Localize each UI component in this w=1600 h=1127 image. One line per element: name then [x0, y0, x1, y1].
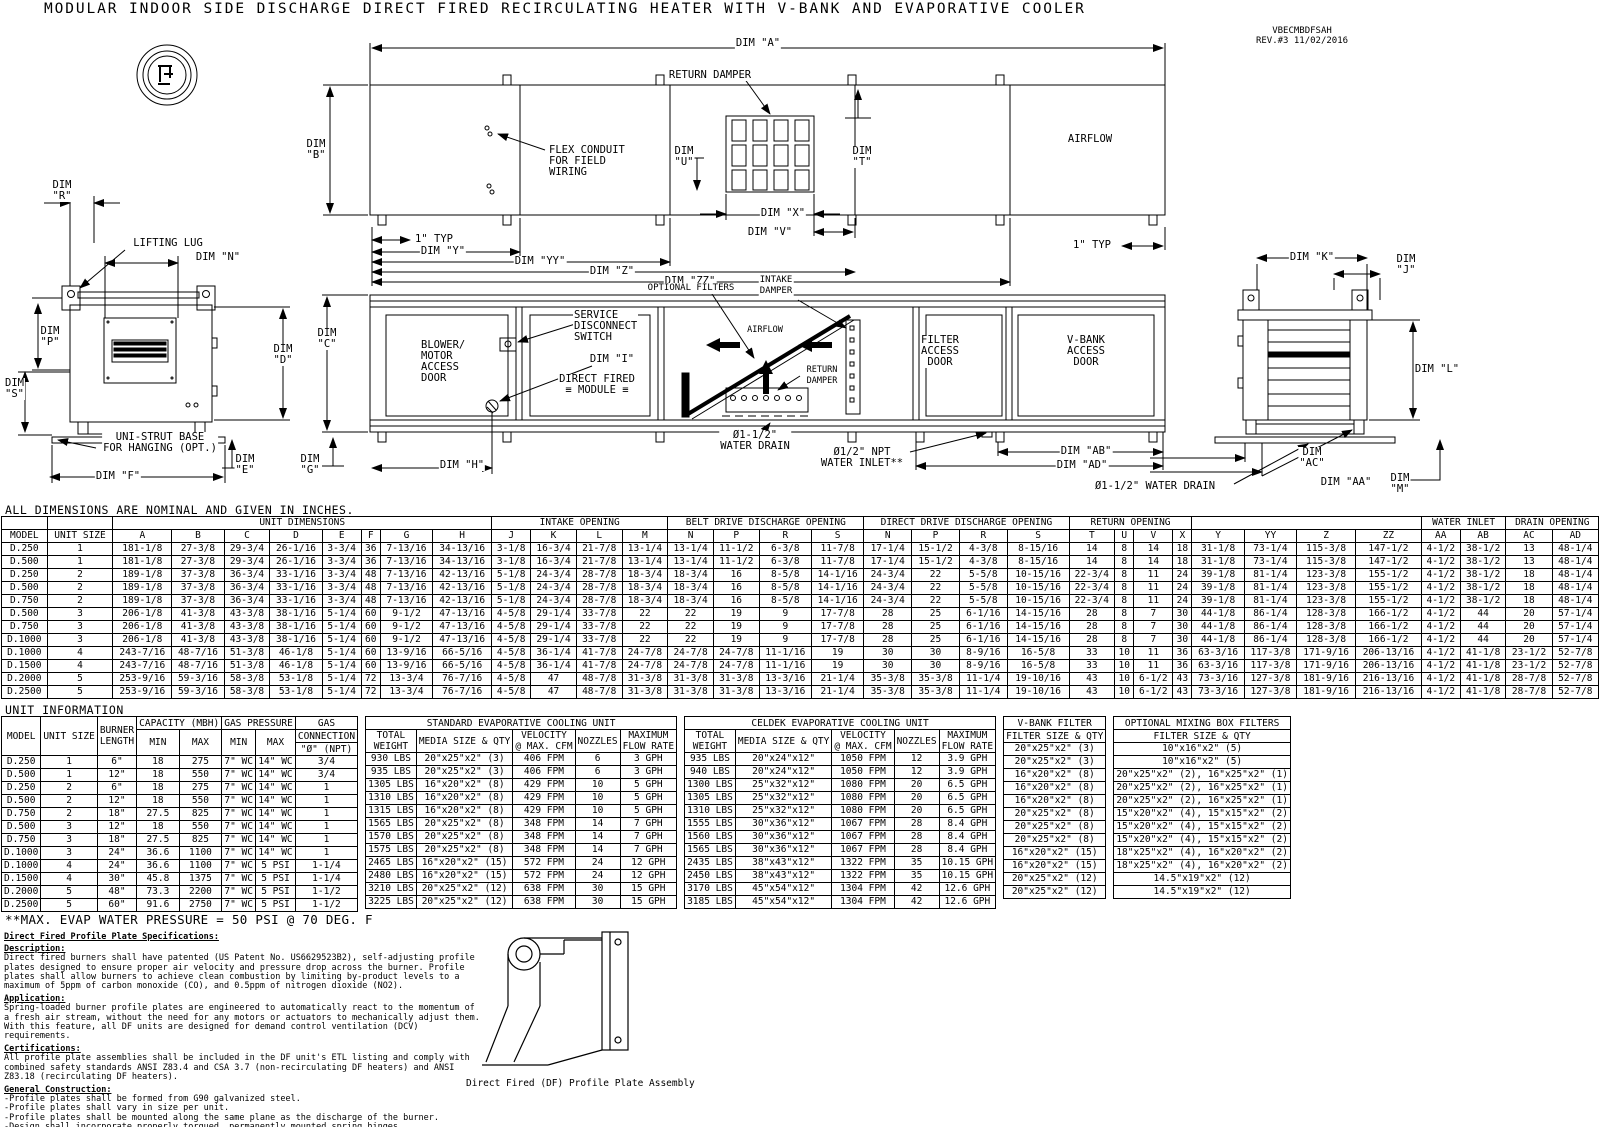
table-cell: 14-15/16 [1007, 634, 1069, 647]
table-cell: 34-13/16 [433, 556, 492, 569]
table-cell: 43 [1173, 673, 1192, 686]
table-cell: 1322 FPM [832, 857, 894, 870]
table-cell: 26-1/16 [270, 556, 322, 569]
table-cell: 8.4 GPH [939, 831, 995, 844]
table-cell: 42-13/16 [433, 569, 492, 582]
table-row: 1570 LBS20"x25"x2" (8)348 FPM147 GPH [366, 831, 677, 844]
table-cell: 3/4 [295, 756, 357, 769]
table-cell: 81-1/4 [1244, 595, 1296, 608]
column-header: E [322, 530, 361, 543]
table-cell: 117-3/8 [1244, 647, 1296, 660]
table-cell: 18-3/4 [622, 569, 668, 582]
table-cell: 73.3 [137, 886, 180, 899]
table-cell: 30 [864, 647, 912, 660]
table-row: 1305 LBS25"x32"x12"1080 FPM206.5 GPH [685, 792, 996, 805]
table-cell: 20"x25"x2" (8) [416, 818, 513, 831]
table-cell: 1 [47, 556, 113, 569]
table-cell: 11-1/16 [759, 660, 811, 673]
table-cell: 36.6 [137, 860, 180, 873]
table-cell: 47-13/16 [433, 634, 492, 647]
table-cell: 22 [912, 569, 960, 582]
table-cell: 42 [894, 883, 939, 896]
one-inch-typ-left-label: 1" TYP [414, 234, 454, 245]
table-cell: 31-3/8 [622, 686, 668, 699]
table-cell: 35 [894, 857, 939, 870]
table-row: D.7502189-1/837-3/836-3/433-1/163-3/4487… [2, 595, 1599, 608]
table-cell: 20"x25"x2" (8) [1004, 821, 1106, 834]
table-cell: 60" [97, 899, 136, 912]
table-cell: 406 FPM [513, 753, 575, 766]
column-header: U [1115, 530, 1134, 543]
table-cell: 20"x25"x2" (2), 16"x25"x2" (1) [1114, 795, 1291, 808]
table-cell: 13-1/4 [622, 543, 668, 556]
table-cell: 5-1/4 [322, 647, 361, 660]
table-cell: 63-3/16 [1192, 660, 1244, 673]
column-group-header: DRAIN OPENING [1506, 517, 1599, 530]
table-cell: 5-5/8 [959, 569, 1007, 582]
table-row: D.10003206-1/841-3/843-3/838-1/165-1/460… [2, 634, 1599, 647]
table-cell: 3210 LBS [366, 883, 417, 896]
table-cell: 28 [1069, 608, 1115, 621]
water-drain-right-label: Ø1-1/2" WATER DRAIN [1094, 481, 1216, 492]
column-header: S [1007, 530, 1069, 543]
table-cell: 24-3/4 [864, 595, 912, 608]
table-cell: 206-1/8 [113, 608, 172, 621]
table-cell: 44 [1460, 608, 1506, 621]
profile-plate-specifications: Direct Fired Profile Plate Specification… [4, 933, 484, 1127]
table-cell: 181-1/8 [113, 543, 172, 556]
table-cell: 22 [668, 634, 714, 647]
table-cell: 1080 FPM [832, 792, 894, 805]
table-cell: 10-15/16 [1007, 595, 1069, 608]
table-cell: D.1000 [2, 860, 41, 873]
table-cell: 2 [47, 595, 113, 608]
table-cell: 39-1/8 [1192, 569, 1244, 582]
table-row: 10"x16"x2" (5) [1114, 756, 1291, 769]
table-cell: 5 GPH [620, 805, 676, 818]
table-cell: 42-13/16 [433, 595, 492, 608]
table-cell: 16"x20"x2" (15) [416, 870, 513, 883]
column-header: N [668, 530, 714, 543]
dim-f-label: DIM "F" [95, 471, 141, 482]
table-cell: 21-1/4 [811, 686, 863, 699]
table-row: D.1000424"36.611007" WC5 PSI1-1/4 [2, 860, 358, 873]
table-cell: 63-3/16 [1192, 647, 1244, 660]
table-row: D.750318"27.58257" WC14" WC1 [2, 834, 358, 847]
table-cell: 1100 [179, 860, 222, 873]
table-cell: 3-3/4 [322, 595, 361, 608]
table-cell: 22 [668, 608, 714, 621]
table-cell: 3 [47, 621, 113, 634]
table-cell: 20 [1506, 608, 1552, 621]
table-cell: 41-1/8 [1460, 686, 1506, 699]
table-cell: 128-3/8 [1297, 621, 1356, 634]
table-cell: 20"x25"x2" (8) [1004, 834, 1106, 847]
table-cell: 66-5/16 [433, 647, 492, 660]
table-cell: 18 [1506, 569, 1552, 582]
dim-r-label: DIM "R" [52, 180, 73, 202]
table-cell: 38-1/2 [1460, 595, 1506, 608]
table-cell: 36-3/4 [224, 595, 270, 608]
table-cell: 19 [811, 660, 863, 673]
table-cell: 24-7/8 [713, 647, 759, 660]
table-cell: 60 [361, 634, 380, 647]
table-cell: 20"x25"x2" (3) [416, 753, 513, 766]
table-cell: 41-3/8 [172, 621, 224, 634]
table-cell: 39-1/8 [1192, 595, 1244, 608]
table-row: D.1000324"36.611007" WC14" WC1 [2, 847, 358, 860]
table-cell: 216-13/16 [1356, 673, 1422, 686]
specs-title: Direct Fired Profile Plate Specification… [4, 933, 484, 942]
table-cell: 25 [912, 608, 960, 621]
table-cell: 1 [295, 795, 357, 808]
table-cell: 58-3/8 [224, 673, 270, 686]
column-header: FILTER SIZE & QTY [1114, 730, 1291, 743]
table-cell: 15"x20"x2" (4), 15"x15"x2" (2) [1114, 808, 1291, 821]
table-cell: 38-1/2 [1460, 582, 1506, 595]
table-cell: 206-1/8 [113, 621, 172, 634]
column-group-header [47, 517, 113, 530]
table-cell: 23-1/2 [1506, 660, 1552, 673]
table-cell: 171-9/16 [1297, 660, 1356, 673]
table-cell: 206-13/16 [1356, 660, 1422, 673]
table-cell: 13-9/16 [380, 647, 432, 660]
table-cell: 4-1/2 [1421, 543, 1460, 556]
table-cell: 253-9/16 [113, 686, 172, 699]
table-cell: 2 [47, 569, 113, 582]
table-cell: 10 [575, 792, 620, 805]
table-cell: 48-1/4 [1552, 556, 1598, 569]
table-cell: 9 [759, 608, 811, 621]
column-header: V [1134, 530, 1173, 543]
table-cell: 73-3/16 [1192, 686, 1244, 699]
col-cap-min: MIN [137, 730, 180, 756]
table-cell: 22-3/4 [1069, 582, 1115, 595]
table-row: 2450 LBS38"x43"x12"1322 FPM3510.15 GPH [685, 870, 996, 883]
table-row: 940 LBS20"x24"x12"1050 FPM123.9 GPH [685, 766, 996, 779]
table-cell: 11 [1134, 582, 1173, 595]
table-cell: 11-1/2 [713, 543, 759, 556]
vbank-title: V-BANK FILTER [1004, 717, 1106, 730]
column-header: Y [1192, 530, 1244, 543]
table-cell: 38"x43"x12" [735, 870, 832, 883]
table-cell: 52-7/8 [1552, 673, 1598, 686]
direct-fired-module-label: DIRECT FIRED ≡ MODULE ≡ [558, 374, 636, 396]
table-cell: 13 [1506, 556, 1552, 569]
column-group-header: BELT DRIVE DISCHARGE OPENING [668, 517, 864, 530]
table-cell: 43-3/8 [224, 608, 270, 621]
spec-sheet: MODULAR INDOOR SIDE DISCHARGE DIRECT FIR… [0, 0, 1600, 1127]
col-unit-size: UNIT SIZE [41, 717, 97, 756]
table-cell: 48-1/4 [1552, 595, 1598, 608]
table-cell: 37-3/8 [172, 569, 224, 582]
column-header: TOTAL WEIGHT [685, 730, 736, 753]
table-row: 20"x25"x2" (12) [1004, 873, 1106, 886]
table-cell: 29-3/4 [224, 556, 270, 569]
drawing-labels: DIM "A"DIM "B"DIM "R"LIFTING LUGDIM "N"D… [0, 28, 1600, 506]
table-cell: 8-9/16 [959, 660, 1007, 673]
table-cell: 166-1/2 [1356, 608, 1422, 621]
vbank-door-label: V-BANK ACCESS DOOR [1066, 335, 1106, 368]
column-header: F [361, 530, 380, 543]
table-cell: 47 [531, 673, 577, 686]
table-row: D.25026"182757" WC14" WC1 [2, 782, 358, 795]
table-row: 2480 LBS16"x20"x2" (15)572 FPM2412 GPH [366, 870, 677, 883]
table-cell: 127-3/8 [1244, 673, 1296, 686]
table-cell: 25"x32"x12" [735, 805, 832, 818]
table-cell: 52-7/8 [1552, 647, 1598, 660]
return-damper-mid-label: RETURN DAMPER [806, 365, 839, 387]
table-cell: 5 [41, 899, 97, 912]
table-cell: 11-7/8 [811, 556, 863, 569]
dim-h-label: DIM "H" [439, 460, 485, 471]
table-cell: 30" [97, 873, 136, 886]
column-header: X [1173, 530, 1192, 543]
table-cell: 1 [47, 543, 113, 556]
table-cell: 29-1/4 [531, 621, 577, 634]
dim-d-label: DIM "D" [273, 344, 294, 366]
table-cell: 16-3/4 [531, 543, 577, 556]
table-cell: 20 [894, 805, 939, 818]
table-cell: 20"x25"x2" (12) [416, 883, 513, 896]
water-inlet-label: Ø1/2" NPT WATER INLET** [820, 447, 904, 469]
table-cell: 24 [575, 857, 620, 870]
table-cell: 13-3/16 [759, 686, 811, 699]
one-inch-typ-right-label: 1" TYP [1072, 240, 1112, 251]
table-cell: 25 [912, 634, 960, 647]
table-row: 20"x25"x2" (8) [1004, 821, 1106, 834]
table-cell: 2200 [179, 886, 222, 899]
table-cell: 30 [1173, 634, 1192, 647]
table-cell: D.250 [2, 782, 41, 795]
table-cell: 11-1/4 [959, 686, 1007, 699]
table-cell: 9 [759, 634, 811, 647]
table-cell: 34-13/16 [433, 543, 492, 556]
table-cell: 12" [97, 821, 136, 834]
table-cell: 1080 FPM [832, 805, 894, 818]
table-cell: 53-1/8 [270, 673, 322, 686]
table-row: 1315 LBS16"x20"x2" (8)429 FPM105 GPH [366, 805, 677, 818]
table-cell: 6-1/2 [1134, 673, 1173, 686]
table-cell: 253-9/16 [113, 673, 172, 686]
table-cell: 11 [1134, 569, 1173, 582]
table-cell: 25 [912, 621, 960, 634]
table-cell: 28 [864, 634, 912, 647]
dim-y-label: DIM "Y" [420, 246, 466, 257]
table-cell: 33-1/16 [270, 569, 322, 582]
table-cell: 2 [41, 795, 97, 808]
table-row: 20"x25"x2" (12) [1004, 886, 1106, 899]
table-cell: 6-1/16 [959, 634, 1007, 647]
table-cell: 28-7/8 [1506, 673, 1552, 686]
standard-evap-title: STANDARD EVAPORATIVE COOLING UNIT [366, 717, 677, 730]
table-cell: 18-3/4 [668, 569, 714, 582]
table-cell: 6.5 GPH [939, 805, 995, 818]
table-cell: 1304 FPM [832, 883, 894, 896]
table-cell: 42 [894, 896, 939, 909]
unit-drawings: DIM "A"DIM "B"DIM "R"LIFTING LUGDIM "N"D… [0, 28, 1600, 506]
table-cell: 1305 LBS [366, 779, 417, 792]
table-cell: 18 [1506, 595, 1552, 608]
table-cell: 1575 LBS [366, 844, 417, 857]
table-cell: 86-1/4 [1244, 621, 1296, 634]
table-row: 2465 LBS16"x20"x2" (15)572 FPM2412 GPH [366, 857, 677, 870]
table-cell: 216-13/16 [1356, 686, 1422, 699]
column-header: AA [1421, 530, 1460, 543]
table-cell: 4-1/2 [1421, 634, 1460, 647]
table-row: 14.5"x19"x2" (12) [1114, 886, 1291, 899]
table-cell: 38-1/16 [270, 621, 322, 634]
table-cell: 35 [894, 870, 939, 883]
table-cell: 28 [1069, 621, 1115, 634]
table-cell: 24-3/4 [531, 595, 577, 608]
table-cell: 5 PSI [256, 886, 296, 899]
table-cell: 189-1/8 [113, 569, 172, 582]
table-cell: 28-7/8 [576, 595, 622, 608]
table-cell: 28 [864, 608, 912, 621]
table-cell: 572 FPM [513, 870, 575, 883]
table-cell: 19-10/16 [1007, 686, 1069, 699]
table-cell: 36-1/4 [531, 647, 577, 660]
table-cell: 14 [1069, 556, 1115, 569]
dim-g-label: DIM "G" [300, 454, 321, 476]
table-cell: 72 [361, 686, 380, 699]
table-cell: 41-1/8 [1460, 673, 1506, 686]
table-cell: 2 [41, 808, 97, 821]
table-cell: 51-3/8 [224, 660, 270, 673]
table-cell: 19 [713, 621, 759, 634]
column-header: NOZZLES [894, 730, 939, 753]
table-cell: 3.9 GPH [939, 753, 995, 766]
dim-b-label: DIM "B" [306, 139, 327, 161]
table-cell: 5-1/8 [492, 569, 531, 582]
dimensions-note: ALL DIMENSIONS ARE NOMINAL AND GIVEN IN … [5, 503, 354, 517]
table-cell: 38-1/2 [1460, 556, 1506, 569]
table-cell: 4-1/2 [1421, 556, 1460, 569]
table-cell: 48-7/8 [576, 686, 622, 699]
table-cell: D.750 [2, 834, 41, 847]
table-cell: 20 [894, 792, 939, 805]
table-cell: 7" WC [222, 834, 256, 847]
table-cell: 22 [912, 595, 960, 608]
table-cell: 3 GPH [620, 753, 676, 766]
table-cell: 4-5/8 [492, 647, 531, 660]
table-cell: 3-3/4 [322, 556, 361, 569]
vbank-filter-table: V-BANK FILTER FILTER SIZE & QTY 20"x25"x… [1003, 716, 1106, 899]
table-cell: 18 [137, 756, 180, 769]
table-cell: 24-7/8 [622, 660, 668, 673]
table-cell: 8 [1115, 608, 1134, 621]
table-cell: 14" WC [256, 808, 296, 821]
evap-pressure-footnote: **MAX. EVAP WATER PRESSURE = 50 PSI @ 70… [5, 912, 373, 927]
table-cell: 46-1/8 [270, 660, 322, 673]
table-cell: 123-3/8 [1297, 569, 1356, 582]
table-cell: 86-1/4 [1244, 608, 1296, 621]
col-gas-max: MAX [256, 730, 296, 756]
table-cell: D.500 [2, 582, 48, 595]
table-cell: 1 [41, 756, 97, 769]
table-row: 1305 LBS16"x20"x2" (8)429 FPM105 GPH [366, 779, 677, 792]
table-cell: 1 [41, 769, 97, 782]
table-cell: 14" WC [256, 821, 296, 834]
table-cell: 36 [361, 556, 380, 569]
table-cell: 2480 LBS [366, 870, 417, 883]
table-cell: 25"x32"x12" [735, 779, 832, 792]
table-cell: 24-3/4 [864, 582, 912, 595]
table-cell: 1315 LBS [366, 805, 417, 818]
dim-t-label: DIM "T" [852, 146, 873, 168]
column-header: MAXIMUM FLOW RATE [620, 730, 676, 753]
table-cell: 44 [1460, 621, 1506, 634]
col-gas-pressure: GAS PRESSURE [222, 717, 296, 730]
table-cell: 28 [1069, 634, 1115, 647]
table-cell: 33 [1069, 660, 1115, 673]
table-row: D.500112"185507" WC14" WC3/4 [2, 769, 358, 782]
table-cell: 22 [622, 621, 668, 634]
table-cell: 6 [575, 753, 620, 766]
unit-dimensions-table: UNIT DIMENSIONSINTAKE OPENINGBELT DRIVE … [1, 516, 1599, 699]
table-cell: 36-3/4 [224, 582, 270, 595]
table-cell: 2465 LBS [366, 857, 417, 870]
table-cell: 20"x25"x2" (3) [416, 766, 513, 779]
table-cell: 8-5/8 [759, 595, 811, 608]
table-cell: 28 [894, 844, 939, 857]
table-cell: 1560 LBS [685, 831, 736, 844]
table-cell: 3/4 [295, 769, 357, 782]
table-cell: 4-5/8 [492, 608, 531, 621]
table-cell: 4-5/8 [492, 686, 531, 699]
table-cell: 5-5/8 [959, 582, 1007, 595]
table-cell: 48-7/16 [172, 647, 224, 660]
table-row: 3170 LBS45"x54"x12"1304 FPM4212.6 GPH [685, 883, 996, 896]
table-cell: 1050 FPM [832, 766, 894, 779]
celdek-title: CELDEK EVAPORATIVE COOLING UNIT [685, 717, 996, 730]
table-cell: 10 [1115, 660, 1134, 673]
table-cell: 44-1/8 [1192, 621, 1244, 634]
table-cell: 123-3/8 [1297, 595, 1356, 608]
table-cell: 28-7/8 [576, 569, 622, 582]
table-cell: 81-1/4 [1244, 582, 1296, 595]
table-cell: 3 [47, 608, 113, 621]
table-cell: 31-3/8 [668, 673, 714, 686]
table-cell: 429 FPM [513, 805, 575, 818]
table-cell: 19 [713, 634, 759, 647]
table-row: 935 LBS20"x25"x2" (3)406 FPM63 GPH [366, 766, 677, 779]
table-cell: 12 [894, 766, 939, 779]
table-cell: 5 [47, 686, 113, 699]
table-cell: 19 [713, 608, 759, 621]
column-header: K [531, 530, 577, 543]
table-row: 16"x20"x2" (8) [1004, 782, 1106, 795]
table-cell: 73-1/4 [1244, 543, 1296, 556]
table-cell: 5-1/8 [492, 595, 531, 608]
table-row: D.2000548"73.322007" WC5 PSI1-1/2 [2, 886, 358, 899]
table-cell: 36-1/4 [531, 660, 577, 673]
table-cell: 37-3/8 [172, 582, 224, 595]
flex-conduit-label: FLEX CONDUIT FOR FIELD WIRING [548, 145, 626, 178]
column-header: M [622, 530, 668, 543]
table-cell: 1067 FPM [832, 818, 894, 831]
table-cell: 275 [179, 756, 222, 769]
table-cell: 28-7/8 [1506, 686, 1552, 699]
water-drain-mid-label: Ø1-1/2" WATER DRAIN [719, 430, 791, 452]
table-row: 3210 LBS20"x25"x2" (12)638 FPM3015 GPH [366, 883, 677, 896]
column-header: UNIT SIZE [47, 530, 113, 543]
table-cell: 4-1/2 [1421, 582, 1460, 595]
table-cell: D.1000 [2, 647, 48, 660]
table-cell: 2450 LBS [685, 870, 736, 883]
dim-ad-label: DIM "AD" [1056, 460, 1109, 471]
